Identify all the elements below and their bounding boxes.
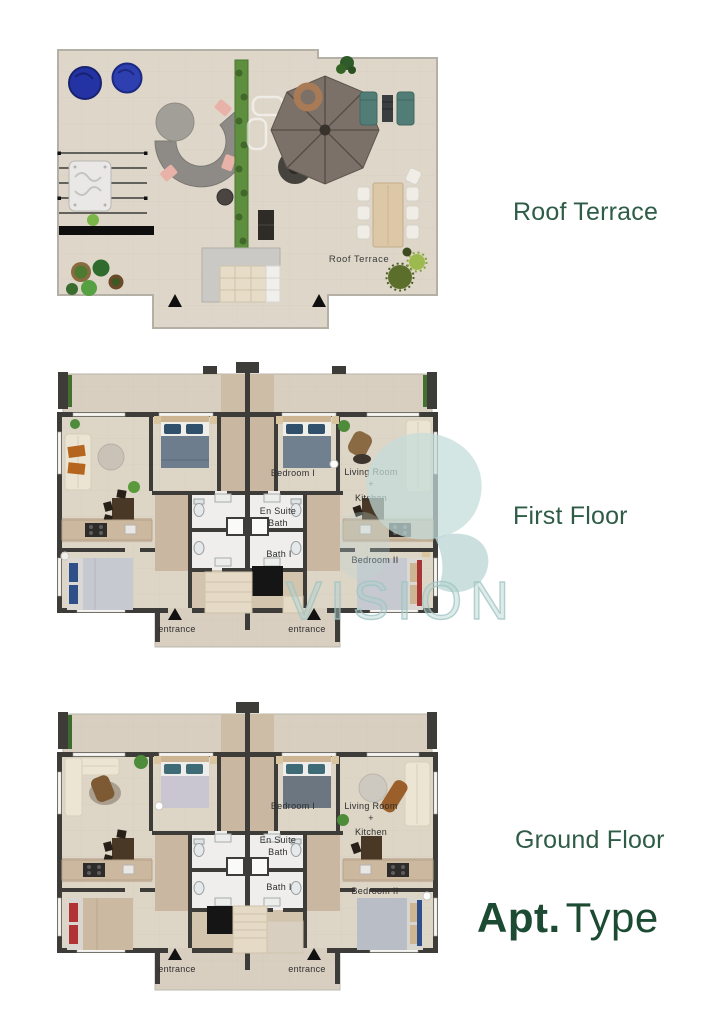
- apt-bold-text: Apt.: [477, 894, 561, 941]
- bedroom1-right: [276, 416, 339, 468]
- small-plant: [87, 214, 99, 226]
- apartment-type-title: Apt.Type: [477, 894, 659, 942]
- floor-plan-sheet: Roof Terrace: [0, 0, 723, 1024]
- door-opening: [168, 608, 192, 613]
- entrance-label: entrance: [158, 624, 195, 634]
- ground-floor-title: Ground Floor: [515, 826, 665, 855]
- outdoor-bench: [59, 226, 154, 235]
- apt-light-text: Type: [566, 894, 659, 941]
- sun-loungers: [360, 92, 414, 125]
- stairwell: [202, 248, 280, 302]
- plus-label: +: [368, 813, 374, 823]
- side-table: [217, 189, 233, 205]
- hedge: [235, 60, 248, 252]
- bedroom1-label: Bedroom I: [271, 468, 315, 478]
- roof-terrace-plan-label: Roof Terrace: [329, 254, 389, 265]
- bedroom2-left: [61, 552, 133, 610]
- bedroom2-label: Bedroom II: [351, 886, 398, 896]
- ensuite-label-line1: En Suite: [260, 835, 296, 845]
- first-floor-title: First Floor: [513, 502, 628, 531]
- ensuite-label-line2: Bath: [268, 518, 288, 528]
- bath1-label: Bath I: [266, 549, 291, 559]
- door-opening: [168, 948, 192, 953]
- roof-stub: [203, 366, 217, 374]
- entrance-label: entrance: [158, 964, 195, 974]
- console-table: [258, 210, 274, 240]
- ensuite-label-line2: Bath: [268, 847, 288, 857]
- kitchen-label: Kitchen: [355, 827, 387, 837]
- bedroom-left: [154, 416, 217, 468]
- chimney-stack: [236, 362, 259, 373]
- living-room-label: Living Room: [344, 801, 397, 811]
- roof-terrace-floorplan: Roof Terrace: [55, 45, 440, 330]
- bedroom2-left: [67, 898, 133, 950]
- bedroom2-right: [357, 892, 431, 950]
- chimney-stack: [236, 702, 259, 713]
- roof-terrace-title: Roof Terrace: [513, 198, 658, 227]
- vision-watermark-text: VISION: [286, 570, 517, 632]
- bedroom1-label: Bedroom I: [271, 801, 315, 811]
- bath1-label: Bath I: [266, 882, 291, 892]
- bedroom-left: [154, 756, 217, 810]
- ensuite-label-line1: En Suite: [260, 506, 296, 516]
- ground-floor-floorplan: Bedroom I Living Room + Kitchen En Suite…: [55, 700, 440, 996]
- entrance-label: entrance: [288, 964, 325, 974]
- hot-tub: [69, 161, 111, 211]
- butterfly-watermark-icon: [340, 418, 510, 593]
- roof-stub: [332, 366, 346, 374]
